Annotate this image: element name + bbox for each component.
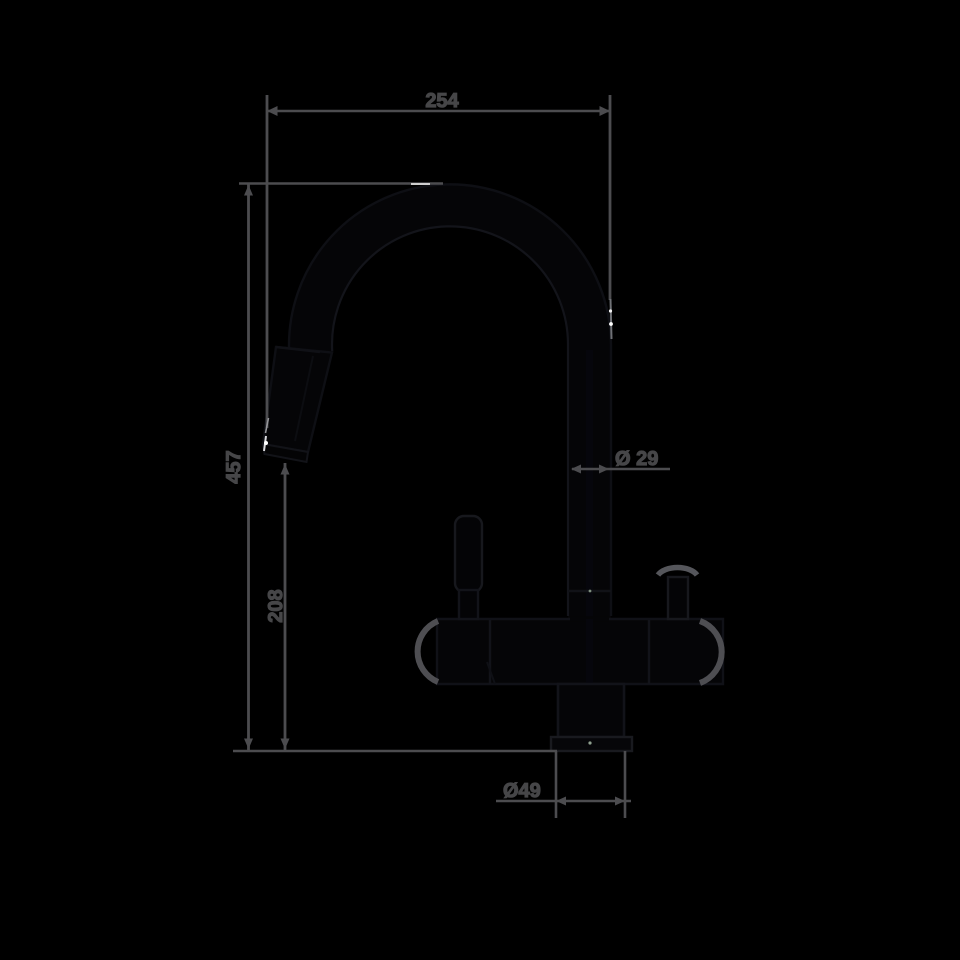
- svg-text:457: 457: [223, 450, 245, 483]
- svg-text:208: 208: [265, 589, 287, 622]
- svg-text:Ø49: Ø49: [503, 780, 541, 802]
- svg-text:Ø 29: Ø 29: [615, 448, 658, 470]
- svg-text:254: 254: [425, 90, 459, 112]
